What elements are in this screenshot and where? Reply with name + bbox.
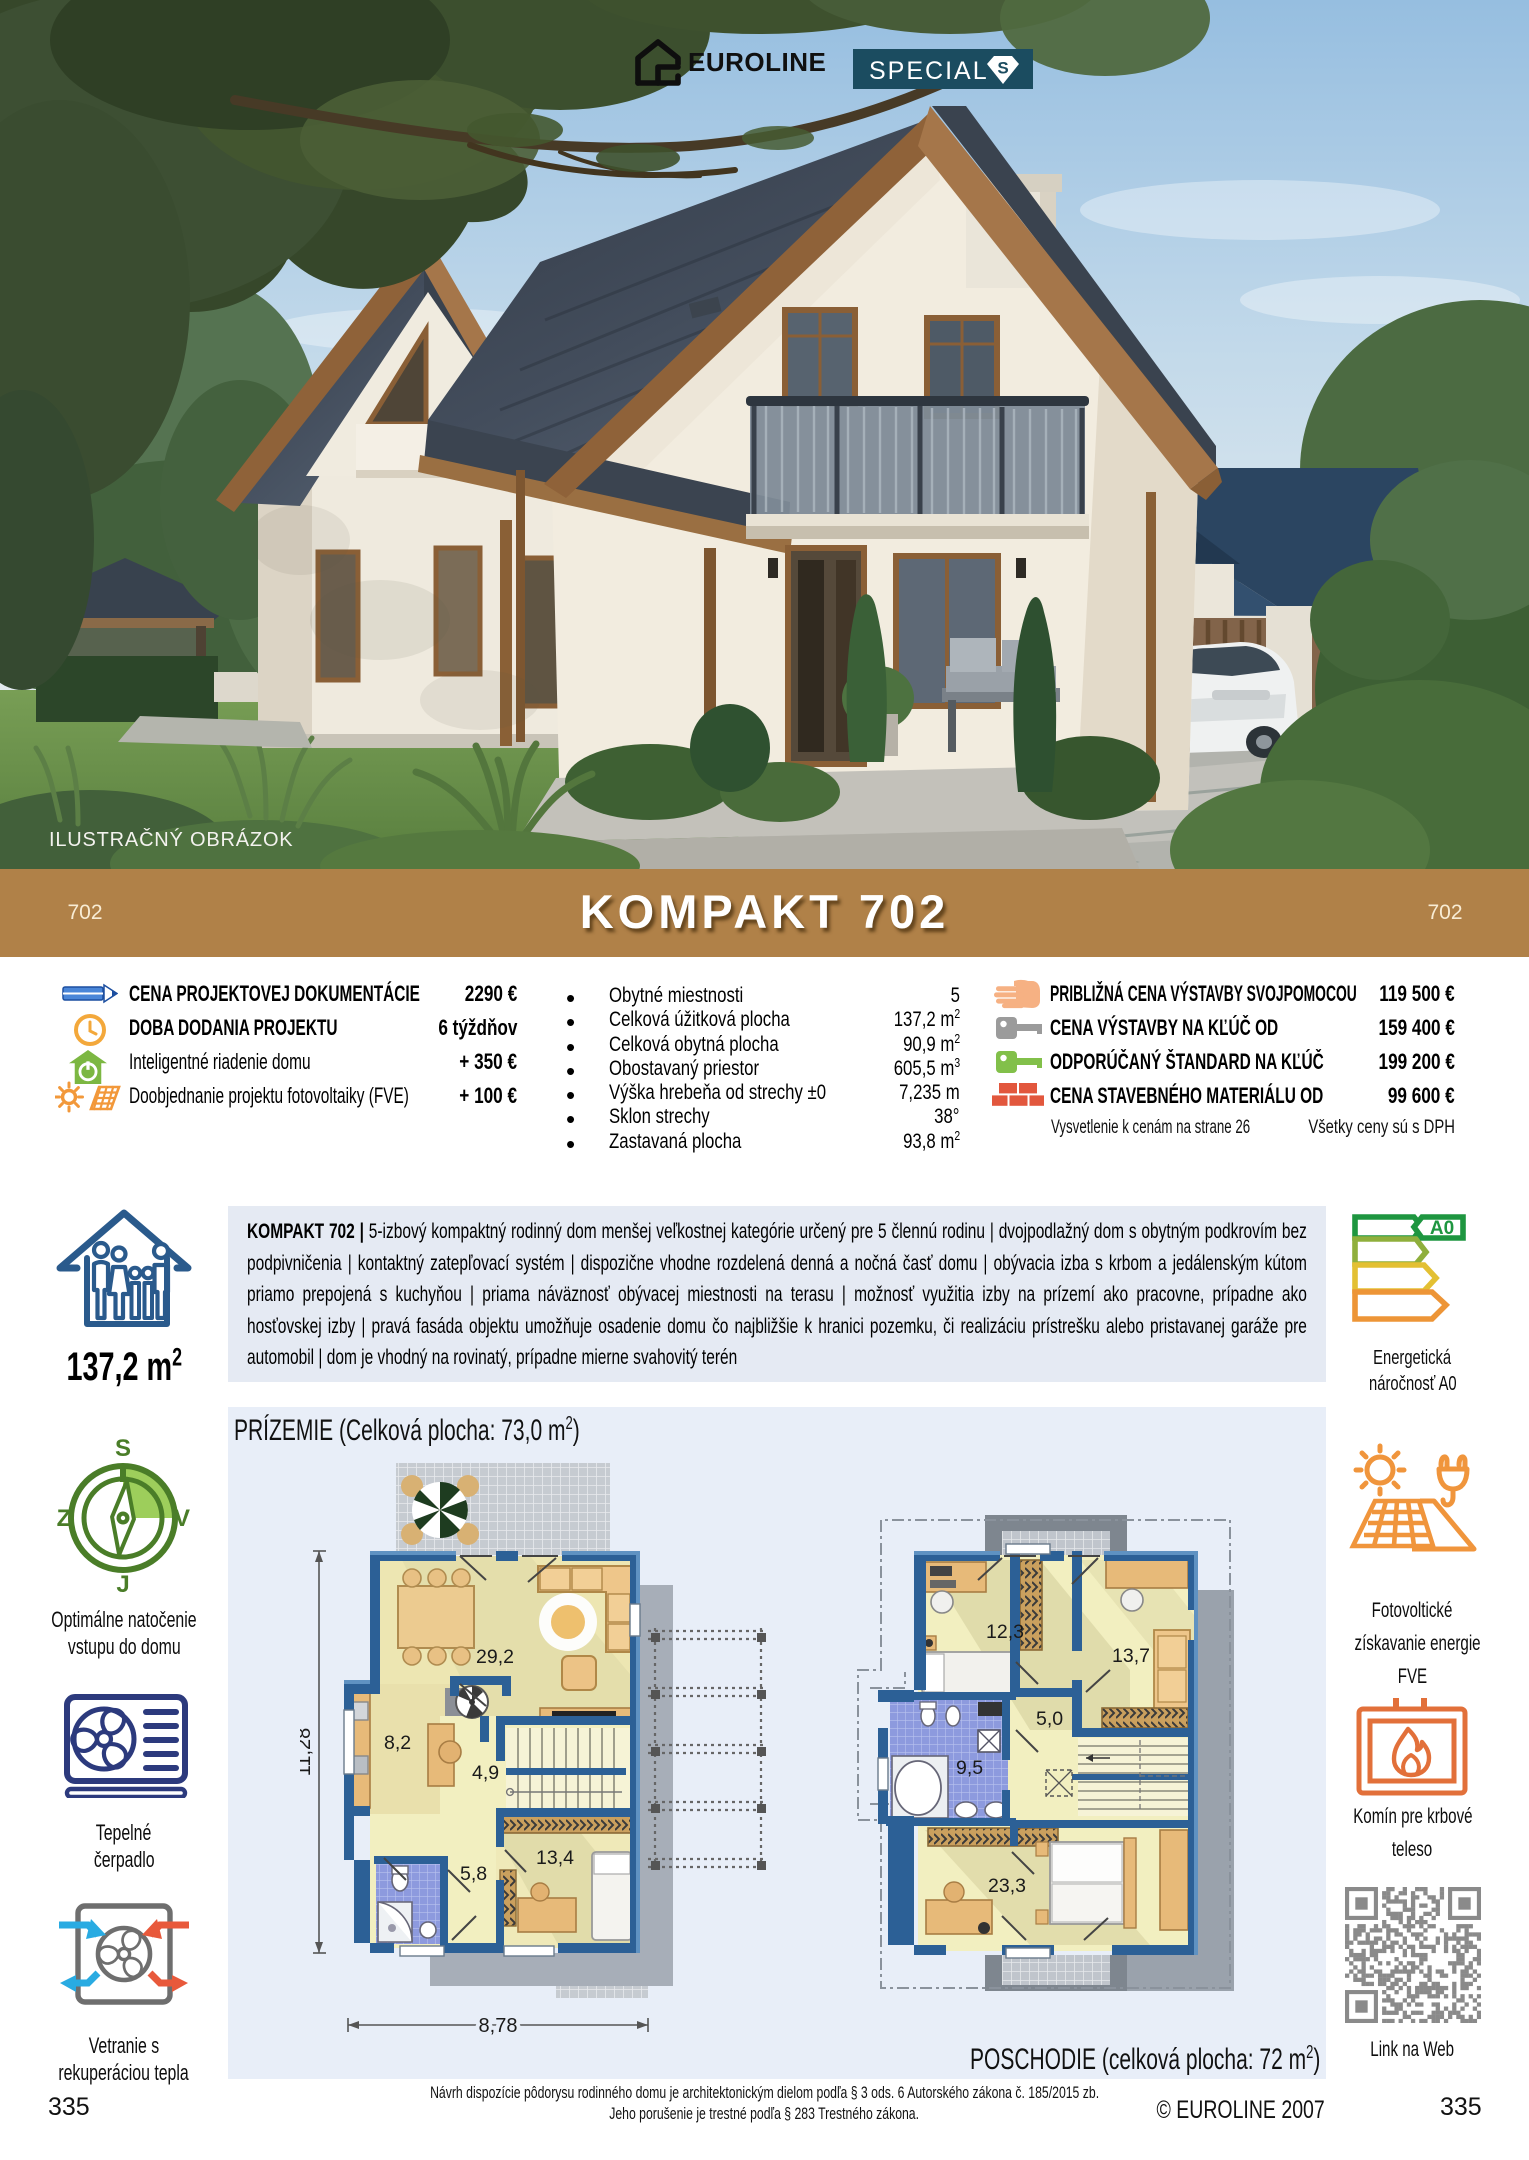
svg-text:S: S — [115, 1437, 131, 1462]
svg-text:J: J — [116, 1571, 129, 1595]
svg-text:23,3: 23,3 — [988, 1875, 1026, 1897]
svg-text:5,0: 5,0 — [1036, 1708, 1063, 1730]
svg-text:A0: A0 — [1430, 1218, 1454, 1239]
svg-text:9,5: 9,5 — [956, 1757, 983, 1779]
svg-text:13,7: 13,7 — [1112, 1645, 1150, 1667]
svg-text:11,28: 11,28 — [300, 1728, 315, 1777]
svg-text:8,2: 8,2 — [384, 1732, 411, 1754]
svg-text:5,8: 5,8 — [460, 1863, 487, 1885]
svg-text:13,4: 13,4 — [536, 1847, 574, 1869]
svg-text:29,2: 29,2 — [476, 1646, 514, 1668]
svg-text:4,9: 4,9 — [472, 1762, 499, 1784]
svg-text:S: S — [997, 59, 1008, 78]
svg-text:12,3: 12,3 — [986, 1621, 1024, 1643]
svg-text:8,78: 8,78 — [479, 2015, 518, 2037]
svg-text:Z: Z — [57, 1505, 72, 1532]
svg-text:ILUSTRAČNÝ OBRÁZOK: ILUSTRAČNÝ OBRÁZOK — [49, 828, 293, 851]
svg-text:V: V — [174, 1505, 190, 1532]
